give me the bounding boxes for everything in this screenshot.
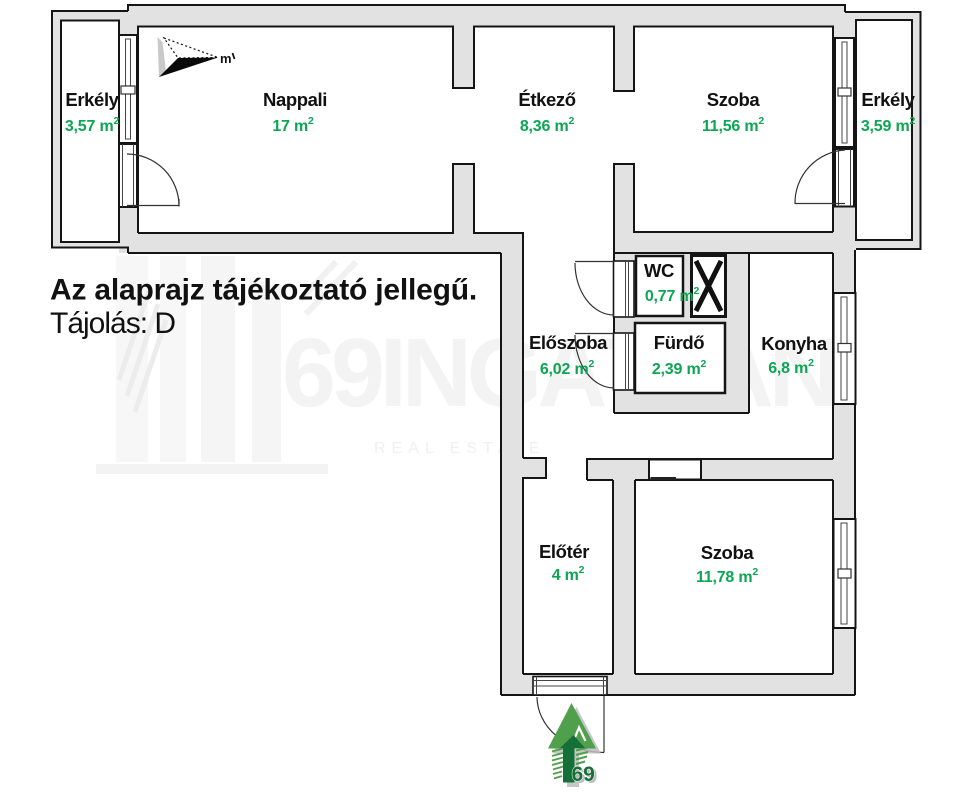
svg-text:Szoba: Szoba (707, 89, 761, 110)
svg-text:Erkély: Erkély (65, 89, 119, 110)
svg-text:6,02 m2: 6,02 m2 (540, 358, 595, 378)
svg-text:WC: WC (644, 260, 674, 281)
svg-text:Nappali: Nappali (263, 89, 327, 110)
svg-text:69: 69 (572, 763, 595, 786)
svg-text:6,8 m2: 6,8 m2 (768, 357, 814, 377)
svg-text:Előtér: Előtér (539, 541, 589, 562)
svg-text:8,36 m2: 8,36 m2 (520, 115, 575, 135)
svg-text:17 m2: 17 m2 (272, 115, 314, 135)
svg-text:Tájolás: D: Tájolás: D (50, 307, 175, 340)
svg-text:Az alaprajz tájékoztató jelleg: Az alaprajz tájékoztató jellegű. (50, 274, 477, 307)
svg-text:Fürdő: Fürdő (654, 332, 705, 353)
svg-text:0,77 m2: 0,77 m2 (645, 285, 700, 305)
svg-text:11,56 m2: 11,56 m2 (702, 115, 764, 135)
svg-text:Konyha: Konyha (761, 333, 828, 354)
svg-text:Szoba: Szoba (701, 542, 755, 563)
svg-text:Erkély: Erkély (861, 89, 915, 110)
svg-text:m: m (220, 51, 232, 66)
svg-text:Étkező: Étkező (518, 89, 575, 110)
svg-text:11,78 m2: 11,78 m2 (696, 566, 758, 586)
svg-text:3,57 m2: 3,57 m2 (65, 115, 120, 135)
svg-text:Előszoba: Előszoba (529, 332, 608, 353)
svg-text:3,59 m2: 3,59 m2 (861, 115, 916, 135)
svg-text:2,39 m2: 2,39 m2 (652, 358, 707, 378)
